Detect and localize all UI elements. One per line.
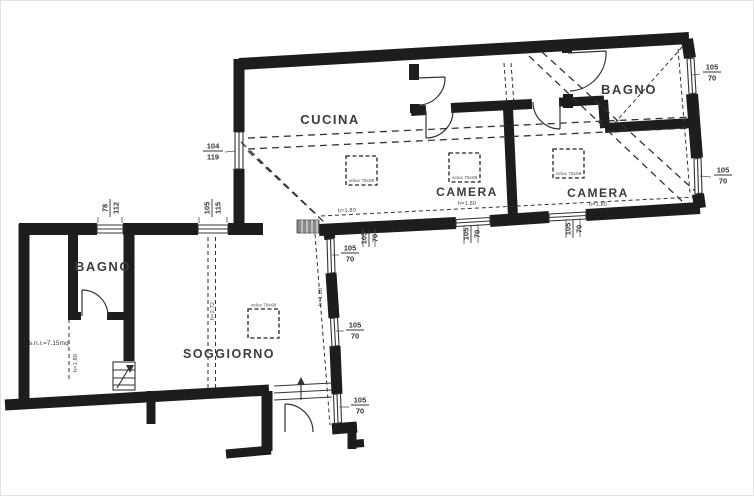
dim-soggiorno-window-1: 105 70 <box>341 244 359 264</box>
wall-bottom-upper-seg-1 <box>586 208 700 215</box>
velux-cucina-label: velux 78x98 <box>349 178 375 184</box>
height-note-soggiorno-272: h=2.72 <box>210 302 216 320</box>
svg-text:70: 70 <box>719 177 727 186</box>
wall-right-seg-1 <box>687 39 690 58</box>
radiator-body <box>297 220 319 233</box>
leader-right-window-1 <box>692 74 700 75</box>
wall-soggiorno-right-seg-2 <box>331 273 334 318</box>
svg-text:70: 70 <box>356 407 364 416</box>
window-soggiorno-right-2 <box>331 318 340 347</box>
dim-soggiorno-window-3: 105 70 <box>351 396 369 416</box>
room-label-soggiorno: SOGGIORNO <box>183 347 275 361</box>
entry-steps <box>274 377 332 400</box>
velux-soggiorno-label: velux 78x98 <box>251 303 277 309</box>
height-note-bagno-left: h=1.80 <box>73 354 79 372</box>
projection-line-hall-2 <box>511 63 514 104</box>
wall-bagno-top-step <box>603 100 605 128</box>
height-note-cucina-line: h=1.80 <box>338 208 356 215</box>
room-label-cucina: CUCINA <box>300 112 360 127</box>
svg-text:105: 105 <box>706 63 719 72</box>
wall-soggiorno-right-seg-3 <box>335 346 337 394</box>
windows <box>97 58 702 424</box>
leader-left-window-1 <box>98 217 122 223</box>
velux-camera1-label: velux 78x98 <box>452 175 478 181</box>
leader-left-window-2 <box>199 217 227 223</box>
door-camera2 <box>533 102 560 129</box>
wall-right-seg-2 <box>692 94 697 158</box>
wall-hall-camera1-seg-1 <box>411 110 426 111</box>
svg-text:105: 105 <box>349 321 362 330</box>
window-left-wing-1 <box>97 225 123 233</box>
svg-text:105: 105 <box>717 166 730 175</box>
room-label-bagno-left: BAGNO <box>75 259 131 274</box>
svg-text:115: 115 <box>214 202 223 214</box>
projection-line-hall-1 <box>504 63 507 104</box>
dim-cucina-window: 104 119 <box>203 142 223 162</box>
height-note-soggiorno-right: h=1.80 <box>318 288 324 306</box>
roof-hip-left-1 <box>241 142 318 216</box>
radiator <box>297 220 319 233</box>
room-label-camera2: CAMERA <box>567 186 629 200</box>
floor-plan-canvas: velux 78x98 velux 78x98 velux 78x98 velu… <box>0 0 754 496</box>
dim-camera2-window: 105 70 <box>564 220 584 238</box>
svg-text:70: 70 <box>473 230 482 238</box>
window-camera1-bottom <box>456 218 490 227</box>
stairs-steps <box>113 370 135 385</box>
svg-text:70: 70 <box>575 225 584 233</box>
height-note-camera1: h=1.80 <box>458 201 476 207</box>
svg-text:119: 119 <box>207 153 219 162</box>
dim-right-window-1: 105 70 <box>703 63 721 83</box>
roof-hip-left-2 <box>248 151 324 222</box>
room-labels: CUCINA CAMERA h=1.80 CAMERA h=1.80 BAGNO… <box>75 82 657 361</box>
wall-entry-foot <box>352 443 364 444</box>
velux-camera2-label: velux 78x98 <box>556 171 582 177</box>
svg-text:78: 78 <box>101 204 110 212</box>
svg-text:70: 70 <box>351 332 359 341</box>
dim-left-window-2: 105 115 <box>203 199 223 217</box>
wall-camera1-camera2 <box>508 108 513 217</box>
window-soggiorno-right-3 <box>334 394 342 424</box>
entry-arrow-icon <box>297 377 305 385</box>
wall-bottom-upper-seg-3 <box>319 223 456 230</box>
dim-soggiorno-window-2: 105 70 <box>346 321 364 341</box>
wall-bottom-left-sloped <box>5 390 269 405</box>
wall-bagno-top-south-2 <box>605 123 692 128</box>
window-cucina-left <box>235 132 243 169</box>
stairs-left <box>113 362 135 390</box>
door-entry <box>285 404 313 432</box>
svg-text:105: 105 <box>203 202 212 215</box>
entry-steps-lines <box>274 383 332 400</box>
svg-text:105: 105 <box>360 232 369 245</box>
svg-text:105: 105 <box>462 228 471 241</box>
door-camera1 <box>426 111 453 138</box>
leader-cucina-window <box>225 151 236 152</box>
svg-text:70: 70 <box>371 234 380 242</box>
svg-text:105: 105 <box>564 223 573 236</box>
wall-bottom-L-horizontal <box>226 450 271 454</box>
dim-left-window-1: 78 112 <box>101 199 121 217</box>
door-bagno-left <box>82 290 108 316</box>
window-right-1 <box>687 58 696 94</box>
svg-text:70: 70 <box>708 74 716 83</box>
velux-soggiorno <box>248 309 279 338</box>
wall-soggiorno-right-seg-1 <box>328 230 330 239</box>
svg-text:105: 105 <box>354 396 367 405</box>
svg-text:105: 105 <box>344 244 357 253</box>
room-label-camera1: CAMERA <box>436 185 498 199</box>
height-note-camera2: h=1.80 <box>589 202 607 208</box>
svg-text:112: 112 <box>112 202 121 214</box>
room-label-bagno-top: BAGNO <box>601 82 657 97</box>
svg-text:104: 104 <box>207 142 220 151</box>
dim-camera1-window: 105 70 <box>462 225 482 243</box>
roof-ridge-line-2 <box>248 128 691 149</box>
velux-skylights: velux 78x98 velux 78x98 velux 78x98 velu… <box>248 149 584 338</box>
interior-walls <box>68 41 692 361</box>
dim-right-window-2: 105 70 <box>714 166 732 186</box>
wall-hall-camera1-seg-2 <box>451 104 532 108</box>
floor-plan-drawing: velux 78x98 velux 78x98 velux 78x98 velu… <box>1 1 754 496</box>
window-left-wing-2 <box>198 225 228 233</box>
window-soggiorno-right-1 <box>327 239 335 274</box>
window-camera2-bottom <box>549 212 586 221</box>
area-note-snr: s.n.r.=7.15mq <box>29 340 69 347</box>
svg-text:70: 70 <box>346 255 354 264</box>
wall-bottom-upper-seg-2 <box>490 217 549 221</box>
door-cucina-hall <box>417 77 445 105</box>
wall-top-upper-wing <box>239 38 689 64</box>
